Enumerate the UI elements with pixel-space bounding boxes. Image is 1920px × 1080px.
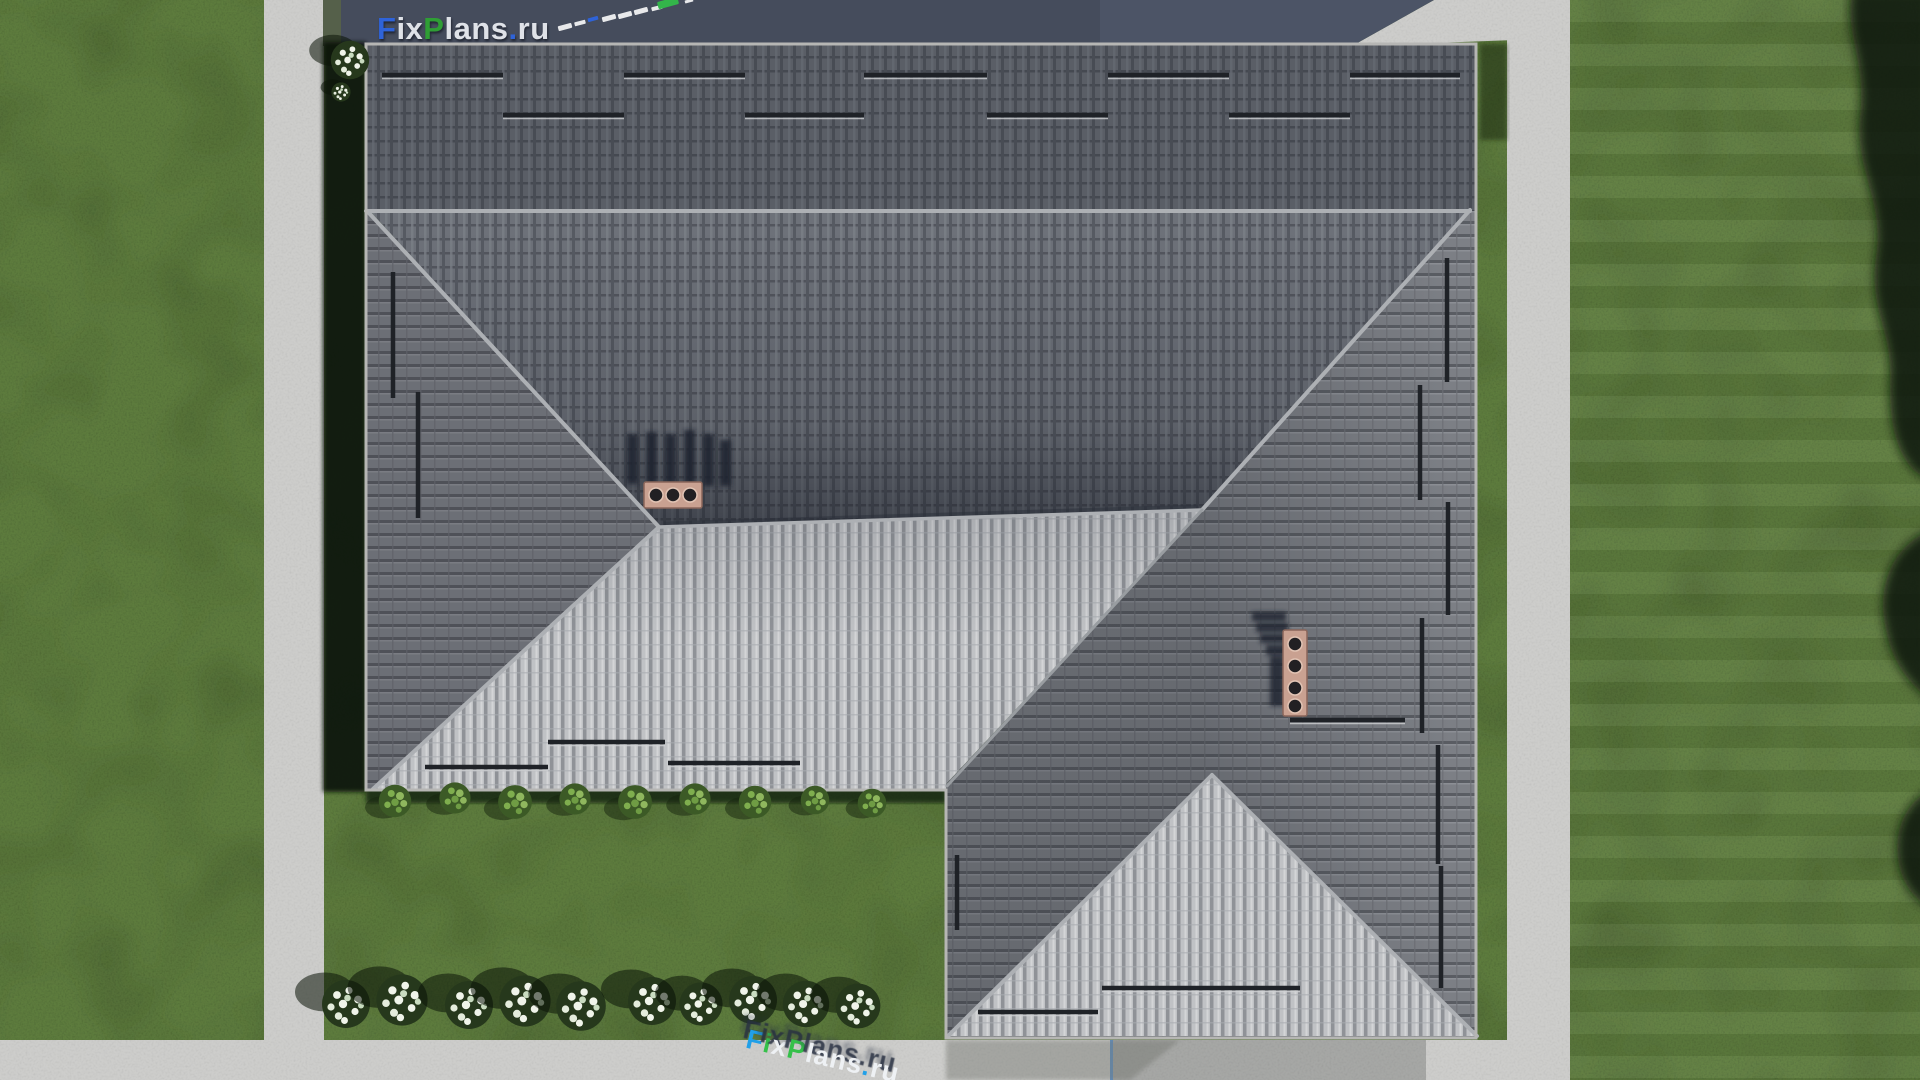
west-house-shadow — [323, 42, 366, 792]
fixplans-watermark: FixPlans.ru — [377, 11, 550, 47]
watermark-letter: F — [377, 11, 396, 47]
watermark-letter: . — [509, 11, 518, 47]
north-slope-shade — [366, 44, 1476, 211]
left-walkway — [264, 0, 324, 1080]
scene-canvas — [0, 0, 1920, 1080]
aerial-roof-render: FixPlans.ru FixPlans.ru — [0, 0, 1920, 1080]
watermark-letter: ru — [518, 11, 550, 47]
east-house-shadow — [1480, 44, 1507, 140]
watermark-letter: P — [423, 11, 444, 47]
watermark-letter: lans — [444, 11, 508, 47]
chimney-south-flues — [649, 488, 697, 502]
watermark-letter: ix — [396, 11, 423, 47]
right-walkway — [1507, 0, 1570, 1080]
foundation-bushes — [365, 782, 886, 820]
